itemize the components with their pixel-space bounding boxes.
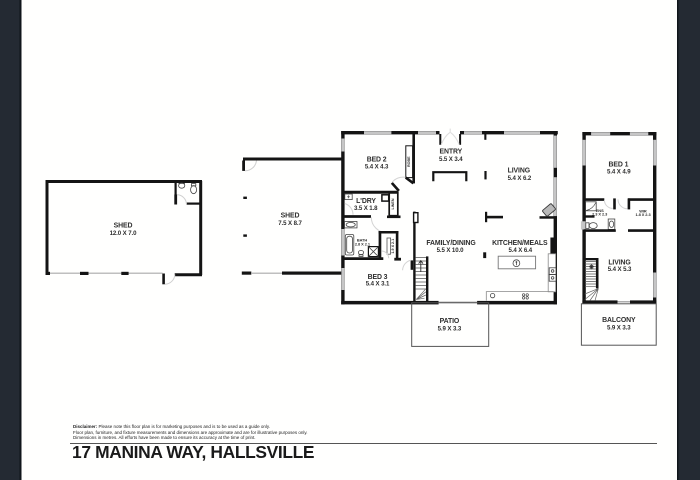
svg-text:LINEN: LINEN [391, 198, 395, 209]
svg-text:5.9 X 3.3: 5.9 X 3.3 [607, 325, 631, 332]
svg-text:PATIO: PATIO [440, 318, 460, 325]
svg-text:5.4 X 6.2: 5.4 X 6.2 [508, 175, 532, 182]
svg-text:BALCONY: BALCONY [602, 317, 636, 324]
svg-text:2.8 X 2.1: 2.8 X 2.1 [355, 242, 371, 247]
svg-text:KITCHEN/MEALS: KITCHEN/MEALS [492, 240, 548, 247]
svg-text:5.4 X 4.3: 5.4 X 4.3 [365, 163, 389, 170]
svg-text:5.4 X 6.4: 5.4 X 6.4 [509, 247, 533, 254]
svg-text:12.0 X 7.0: 12.0 X 7.0 [110, 230, 137, 237]
svg-text:SHED: SHED [114, 222, 133, 229]
svg-text:5.4 X 5.3: 5.4 X 5.3 [608, 266, 632, 273]
svg-text:SHED: SHED [281, 212, 300, 219]
svg-text:3.5 X 1.8: 3.5 X 1.8 [354, 205, 378, 212]
svg-text:LIVING: LIVING [508, 168, 530, 175]
svg-text:L'DRY: L'DRY [356, 198, 376, 205]
svg-text:1.8 X 2.3: 1.8 X 2.3 [635, 212, 651, 217]
svg-text:ENTRY: ENTRY [439, 149, 462, 156]
svg-text:1.9 X 2.1: 1.9 X 2.1 [391, 239, 395, 254]
svg-text:5.5 X 10.0: 5.5 X 10.0 [437, 247, 464, 254]
svg-text:5.4 X 3.1: 5.4 X 3.1 [366, 281, 390, 288]
svg-text:7.5 X 8.7: 7.5 X 8.7 [278, 220, 302, 227]
svg-text:ROBE: ROBE [407, 156, 411, 167]
svg-text:5.9 X 3.3: 5.9 X 3.3 [438, 326, 462, 333]
svg-text:5.4 X 4.9: 5.4 X 4.9 [607, 168, 631, 175]
svg-text:FAMILY/DINING: FAMILY/DINING [426, 240, 475, 247]
svg-text:5.5 X 3.4: 5.5 X 3.4 [439, 156, 463, 163]
svg-text:2.3 X 2.3: 2.3 X 2.3 [592, 212, 608, 217]
